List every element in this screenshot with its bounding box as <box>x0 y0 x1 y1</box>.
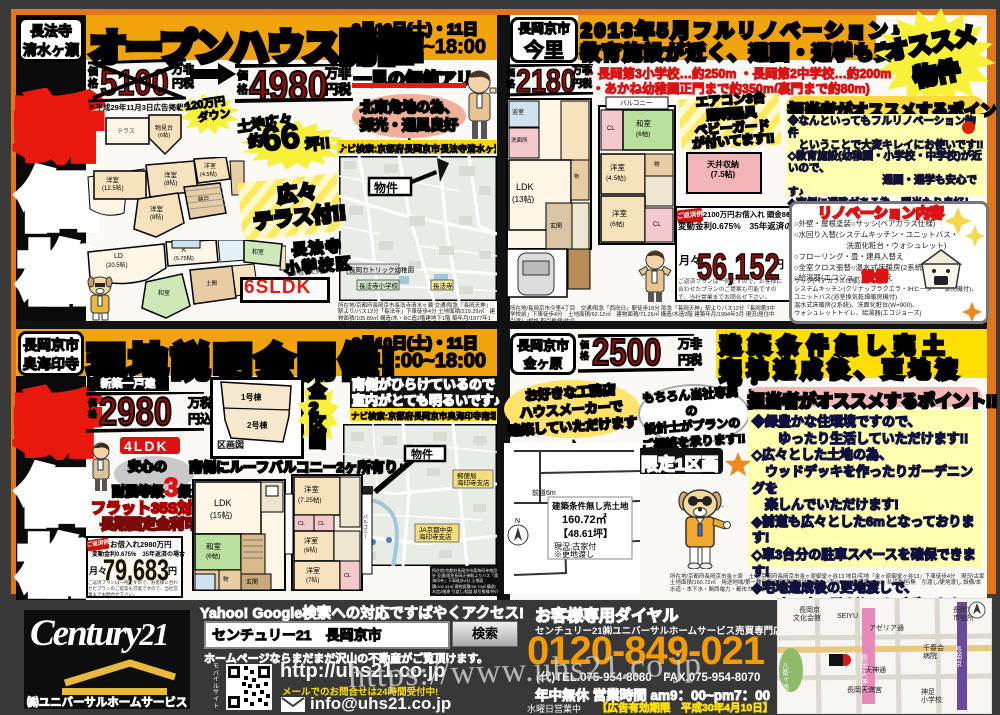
svg-text:(13帖): (13帖) <box>512 194 535 204</box>
svg-text:物: 物 <box>223 575 229 583</box>
svg-text:玄関: 玄関 <box>246 578 258 586</box>
svg-text:物: 物 <box>574 173 579 180</box>
svg-text:(5.75帖): (5.75帖) <box>174 254 194 262</box>
svg-text:長岡カトリック幼稚園: 長岡カトリック幼稚園 <box>349 265 414 274</box>
svg-text:※更地渡し: ※更地渡し <box>554 549 594 559</box>
svg-text:CL: CL <box>607 126 615 132</box>
svg-text:CL: CL <box>298 521 305 527</box>
svg-text:八条ヶ池: 八条ヶ池 <box>782 662 790 690</box>
svg-text:1号棟: 1号棟 <box>241 392 262 402</box>
svg-text:文化会館: 文化会館 <box>793 613 821 622</box>
svg-text:JA京都中央: JA京都中央 <box>419 525 453 534</box>
svg-text:``: `` <box>718 505 724 515</box>
svg-text:2号棟: 2号棟 <box>247 420 268 430</box>
svg-text:(12.5帖): (12.5帖) <box>102 184 124 192</box>
svg-text:160.72㎡: 160.72㎡ <box>562 512 607 526</box>
svg-text:洋室: 洋室 <box>106 175 120 184</box>
svg-text:洗面所: 洗面所 <box>511 136 528 144</box>
svg-text:LDK: LDK <box>214 498 232 508</box>
svg-text:玄関: 玄関 <box>550 222 562 230</box>
svg-text:(6帖): (6帖) <box>304 546 317 554</box>
svg-text:(6帖): (6帖) <box>610 219 624 228</box>
svg-text:和室: 和室 <box>252 248 264 256</box>
svg-text:洋室: 洋室 <box>610 162 625 172</box>
svg-text:アゼリア通: アゼリア通 <box>869 623 904 632</box>
svg-text:(15帖): (15帖) <box>210 510 233 520</box>
svg-text:洋室: 洋室 <box>204 162 216 170</box>
svg-text:(6帖): (6帖) <box>206 551 220 560</box>
svg-text:千春会: 千春会 <box>923 643 944 652</box>
svg-text:(7.25帖): (7.25帖) <box>298 495 321 504</box>
svg-text:洋室: 洋室 <box>304 484 319 494</box>
svg-text:長岡天満宮: 長岡天満宮 <box>847 685 882 694</box>
svg-text:【48.61坪】: 【48.61坪】 <box>558 527 613 540</box>
svg-text:長岡京: 長岡京 <box>799 605 820 614</box>
svg-text:長法寺小学校: 長法寺小学校 <box>359 281 399 290</box>
svg-text:病院: 病院 <box>923 651 937 660</box>
svg-text:バルコニー: バルコニー <box>362 514 368 539</box>
svg-text:区画図: 区画図 <box>217 440 244 450</box>
svg-text:長法寺: 長法寺 <box>433 281 453 290</box>
svg-text:洋室: 洋室 <box>306 566 320 575</box>
svg-text:長岡京: 長岡京 <box>955 646 963 668</box>
svg-text:物見台: 物見台 <box>155 124 173 132</box>
svg-text:神足: 神足 <box>921 687 935 696</box>
svg-text:N: N <box>515 518 520 525</box>
svg-text:SEIYU: SEIYU <box>837 613 858 620</box>
svg-text:天神通: 天神通 <box>865 665 886 674</box>
svg-text:洋室: 洋室 <box>612 208 627 218</box>
svg-text:CL: CL <box>344 573 351 579</box>
svg-text:(6帖): (6帖) <box>636 129 650 138</box>
svg-text:物: 物 <box>654 160 660 168</box>
svg-text:CL: CL <box>653 222 661 228</box>
svg-text:郵便局: 郵便局 <box>457 471 477 480</box>
svg-text:洋室: 洋室 <box>150 204 164 213</box>
svg-text:LD: LD <box>114 253 123 260</box>
svg-text:LDK: LDK <box>516 182 534 192</box>
svg-text:和室: 和室 <box>206 541 221 551</box>
svg-text:物件: 物件 <box>374 180 398 195</box>
svg-text:テラス: テラス <box>117 128 135 135</box>
svg-text:和室: 和室 <box>636 118 651 128</box>
svg-text:(4.5帖): (4.5帖) <box>200 170 217 178</box>
svg-text:(8帖): (8帖) <box>164 179 177 187</box>
svg-text:(8帖): (8帖) <box>150 213 163 221</box>
svg-text:和室: 和室 <box>158 289 170 297</box>
svg-text:CL: CL <box>318 521 325 527</box>
svg-text:(7帖): (7帖) <box>306 576 319 584</box>
svg-text:(6帖): (6帖) <box>158 131 170 139</box>
svg-text:小学校: 小学校 <box>921 695 942 704</box>
svg-text:海印寺支店: 海印寺支店 <box>419 532 452 541</box>
svg-text:(4.5帖): (4.5帖) <box>606 173 626 182</box>
svg-text:K: K <box>182 248 186 254</box>
svg-text:前道6m: 前道6m <box>532 488 556 497</box>
svg-text:海印寺支店: 海印寺支店 <box>457 478 490 487</box>
svg-text:洋室: 洋室 <box>164 170 178 179</box>
svg-text:長岡天神: 長岡天神 <box>861 654 869 686</box>
svg-text:物件: 物件 <box>411 447 433 461</box>
svg-text:浴室: 浴室 <box>512 108 524 116</box>
svg-text:建築条件無し売土地: 建築条件無し売土地 <box>551 501 629 511</box>
svg-text:土間: 土間 <box>206 279 218 287</box>
svg-text:バルコニー: バルコニー <box>620 99 652 107</box>
svg-text:(20.5帖): (20.5帖) <box>106 261 128 269</box>
svg-text:洋室: 洋室 <box>304 536 318 545</box>
